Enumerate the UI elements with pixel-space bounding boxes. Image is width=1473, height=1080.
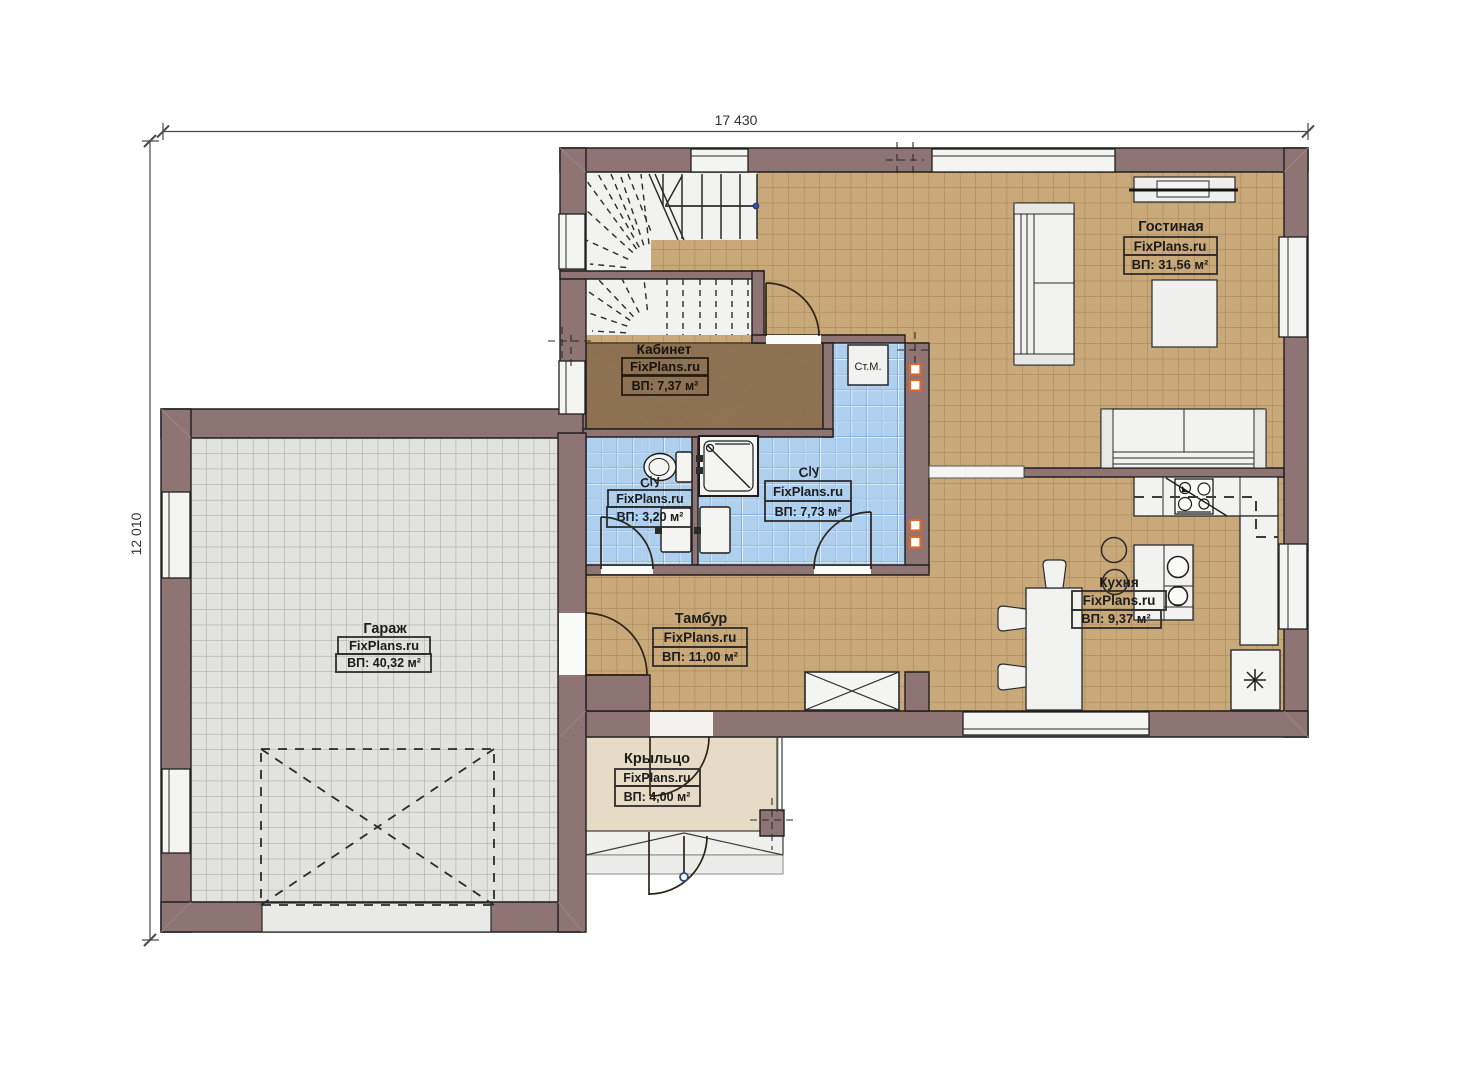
svg-text:ВП: 40,32 м²: ВП: 40,32 м² (347, 656, 421, 670)
svg-text:Кухня: Кухня (1099, 575, 1138, 590)
svg-text:FixPlans.ru: FixPlans.ru (773, 484, 843, 499)
svg-text:Гостиная: Гостиная (1138, 219, 1204, 235)
svg-text:ВП: 9,37 м²: ВП: 9,37 м² (1081, 611, 1151, 626)
svg-text:FixPlans.ru: FixPlans.ru (623, 771, 690, 785)
svg-text:Крыльцо: Крыльцо (624, 751, 690, 767)
svg-text:17 430: 17 430 (715, 112, 758, 128)
svg-text:Гараж: Гараж (363, 621, 407, 637)
svg-text:ВП: 31,56 м²: ВП: 31,56 м² (1132, 257, 1209, 272)
svg-text:FixPlans.ru: FixPlans.ru (616, 492, 683, 506)
svg-text:FixPlans.ru: FixPlans.ru (349, 638, 419, 653)
svg-text:ВП: 4,00 м²: ВП: 4,00 м² (624, 790, 691, 804)
svg-text:Тамбур: Тамбур (675, 611, 728, 627)
svg-text:ВП: 7,73 м²: ВП: 7,73 м² (775, 505, 842, 519)
svg-text:FixPlans.ru: FixPlans.ru (1083, 593, 1156, 608)
svg-text:Ст.М.: Ст.М. (854, 361, 881, 373)
svg-text:FixPlans.ru: FixPlans.ru (1134, 239, 1207, 254)
svg-text:FixPlans.ru: FixPlans.ru (630, 359, 700, 374)
svg-text:12 010: 12 010 (128, 512, 144, 555)
svg-text:Кабинет: Кабинет (637, 342, 692, 357)
svg-text:ВП: 3,20 м²: ВП: 3,20 м² (617, 510, 684, 524)
svg-text:FixPlans.ru: FixPlans.ru (664, 630, 737, 645)
svg-text:ВП: 7,37 м²: ВП: 7,37 м² (632, 379, 699, 393)
svg-text:ВП: 11,00 м²: ВП: 11,00 м² (662, 649, 739, 664)
